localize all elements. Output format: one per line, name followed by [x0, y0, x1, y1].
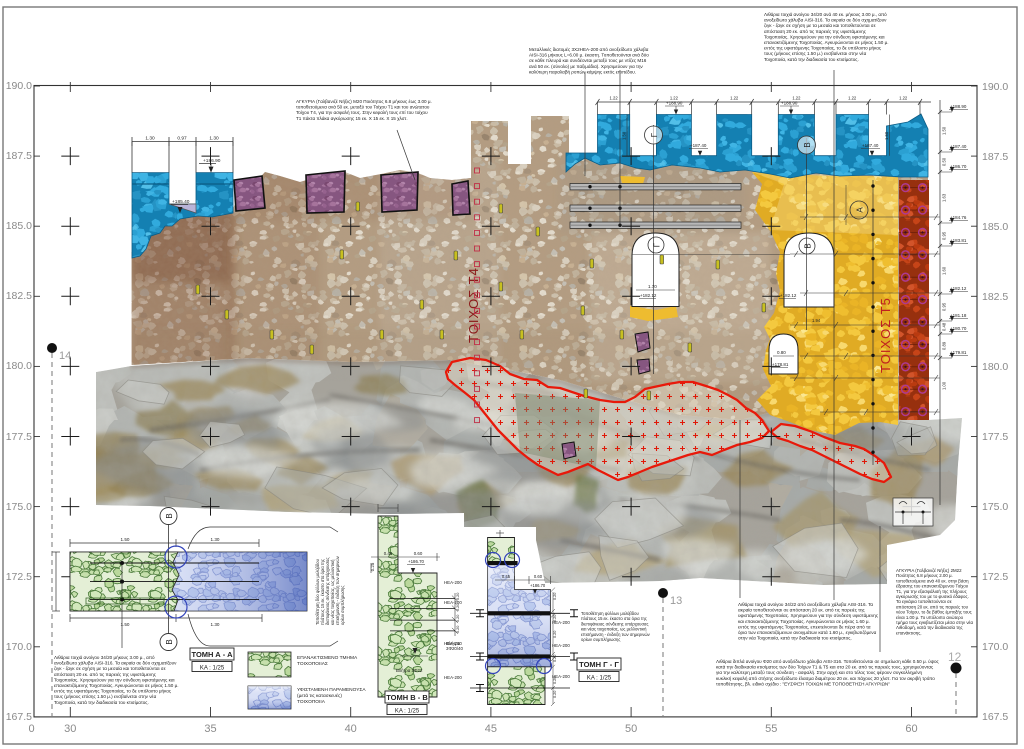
- svg-text:30: 30: [64, 723, 76, 735]
- svg-text:ΤΟΙΧΟΣ Τ4: ΤΟΙΧΟΣ Τ4: [466, 267, 481, 343]
- svg-text:(μετά τις κατασκευές): (μετά τις κατασκευές): [297, 692, 342, 699]
- svg-text:1.63: 1.63: [942, 193, 947, 202]
- svg-text:0.48: 0.48: [942, 322, 947, 331]
- svg-text:167.5: 167.5: [6, 711, 32, 723]
- svg-text:0.89: 0.89: [942, 341, 947, 350]
- svg-text:ΗΕΑ-200: ΗΕΑ-200: [444, 675, 462, 680]
- svg-text:Β: Β: [804, 243, 813, 248]
- svg-text:+187.40: +187.40: [690, 143, 707, 148]
- svg-text:170.0: 170.0: [982, 641, 1008, 653]
- svg-text:Β: Β: [165, 639, 174, 644]
- svg-text:172.5: 172.5: [982, 571, 1008, 583]
- svg-text:3Φ20/40: 3Φ20/40: [446, 646, 463, 651]
- svg-text:Τ1 πάκτα πλάκα αγκύρωσης 15 ε: Τ1 πάκτα πλάκα αγκύρωσης 15 εκ. Χ 15 εκ.…: [296, 115, 408, 121]
- svg-text:Τοιχοποιίας. Χρησιμεύουν για τ: Τοιχοποιίας. Χρησιμεύουν για την σύνδεση…: [54, 676, 175, 682]
- svg-text:1.50: 1.50: [942, 126, 947, 135]
- svg-text:εντός της υφιστάμενης Τοιχοποι: εντός της υφιστάμενης Τοιχοποιίας, το δε…: [764, 45, 882, 51]
- svg-text:Γ: Γ: [653, 242, 662, 247]
- svg-text:180.0: 180.0: [6, 360, 32, 372]
- svg-text:0.45: 0.45: [502, 574, 511, 579]
- svg-text:60: 60: [905, 723, 917, 735]
- svg-text:Β: Β: [165, 513, 174, 518]
- svg-text:175.0: 175.0: [6, 501, 32, 513]
- svg-text:+185.40: +185.40: [172, 199, 190, 205]
- svg-text:ΤΟΜΗ Γ - Γ: ΤΟΜΗ Γ - Γ: [579, 660, 619, 669]
- svg-text:1.94: 1.94: [812, 318, 821, 323]
- svg-text:0.45: 0.45: [384, 551, 393, 556]
- svg-text:+186.70: +186.70: [408, 559, 425, 564]
- svg-text:+187.40: +187.40: [862, 143, 879, 148]
- svg-text:ΥΦΙΣΤΑΜΕΝΗ ΠΑΡΑΜΕΝΟΥΣΑ: ΥΦΙΣΤΑΜΕΝΗ ΠΑΡΑΜΕΝΟΥΣΑ: [297, 687, 366, 693]
- svg-text:Τοίχου Τ4, για την ασφαλή τους: Τοίχου Τ4, για την ασφαλή τους. Στην κεφ…: [296, 109, 428, 115]
- svg-text:ορίων συμπλήρωσης: ορίων συμπλήρωσης: [581, 637, 620, 642]
- svg-text:1.22: 1.22: [610, 96, 619, 101]
- svg-text:182.5: 182.5: [982, 291, 1008, 303]
- svg-text:AISI-316 μήκους L=6.00 μ. έκασ: AISI-316 μήκους L=6.00 μ. έκαστη. Τοποθε…: [529, 52, 649, 58]
- svg-text:0: 0: [29, 723, 35, 735]
- svg-text:185.0: 185.0: [982, 221, 1008, 233]
- svg-text:0.60: 0.60: [414, 551, 423, 556]
- svg-text:0.20: 0.20: [553, 593, 557, 600]
- svg-text:167.5: 167.5: [982, 711, 1008, 723]
- svg-text:40: 40: [345, 723, 357, 735]
- svg-text:182.5: 182.5: [6, 290, 32, 302]
- svg-text:1.30: 1.30: [211, 537, 220, 542]
- svg-text:ΕΠΑΝΑΚΤΙΣΜΕΝΟ ΤΜΗΜΑ: ΕΠΑΝΑΚΤΙΣΜΕΝΟ ΤΜΗΜΑ: [297, 655, 358, 661]
- svg-text:187.5: 187.5: [982, 151, 1008, 163]
- svg-text:0.20: 0.20: [553, 631, 557, 638]
- svg-text:ακραία τοποθετούνται σε απόστα: ακραία τοποθετούνται σε απόσταση 20 εκ. …: [738, 607, 866, 613]
- svg-text:ΤΟΙΧΟΠΟΙΙΑΣ: ΤΟΙΧΟΠΟΙΙΑΣ: [297, 661, 328, 667]
- svg-text:στην νέα Τοιχοποιία, κατά την: στην νέα Τοιχοποιία, κατά την διαδικασία…: [738, 635, 852, 641]
- svg-text:Λιθάρια τοιχιά ανοίγου 34/20 μ: Λιθάρια τοιχιά ανοίγου 34/20 μήκους 3.00…: [54, 654, 155, 660]
- svg-text:1.70: 1.70: [648, 284, 657, 289]
- svg-text:1.30: 1.30: [145, 136, 155, 142]
- svg-text:+182.12: +182.12: [780, 293, 797, 298]
- svg-text:185.0: 185.0: [6, 220, 32, 232]
- svg-text:187.5: 187.5: [6, 150, 32, 162]
- svg-text:1.30: 1.30: [209, 136, 219, 142]
- svg-text:ΤΟΜΗ Α - Α: ΤΟΜΗ Α - Α: [192, 650, 234, 659]
- svg-text:Α: Α: [856, 207, 865, 213]
- svg-text:τους (μήκους επίσης 1.50 μ.) ε: τους (μήκους επίσης 1.50 μ.) ενσβαίνεται…: [54, 693, 157, 699]
- svg-text:177.5: 177.5: [6, 431, 32, 443]
- svg-text:+188.90: +188.90: [666, 101, 683, 106]
- svg-text:ΚΑ : 1/25: ΚΑ : 1/25: [395, 709, 420, 715]
- svg-text:ΤΟΙΧΟΠΟΙΙΑ: ΤΟΙΧΟΠΟΙΙΑ: [297, 699, 326, 705]
- svg-text:1.22: 1.22: [730, 96, 739, 101]
- svg-text:καλύτερη παραλαβή ροπών κάμψης: καλύτερη παραλαβή ροπών κάμψης εκτός επι…: [529, 68, 636, 74]
- svg-text:ορίων συμπλήρωσης: ορίων συμπλήρωσης: [340, 586, 345, 625]
- svg-text:12: 12: [948, 650, 962, 664]
- svg-text:35: 35: [204, 723, 216, 735]
- svg-text:Γ: Γ: [650, 132, 659, 137]
- svg-text:απόσταση 20 εκ. από τις παρειέ: απόσταση 20 εκ. από τις παρειές της υφισ…: [764, 28, 867, 34]
- svg-text:1.50: 1.50: [622, 131, 627, 140]
- svg-text:190.0: 190.0: [982, 81, 1008, 93]
- svg-text:ΗΕΑ-200: ΗΕΑ-200: [444, 580, 462, 585]
- svg-text:180.0: 180.0: [982, 361, 1008, 373]
- svg-text:Τοιχοποιίας. Χρησιμεύουν για τ: Τοιχοποιίας. Χρησιμεύουν για την σύνδεση…: [764, 33, 885, 39]
- svg-text:1.50: 1.50: [121, 537, 130, 542]
- svg-text:0.97: 0.97: [177, 136, 187, 142]
- svg-text:τοποθέτησης, βλ. ειδικό σχέδιο: τοποθέτησης, βλ. ειδικό σχέδιο : "ΕΥΣΦΙΞ…: [716, 680, 890, 686]
- svg-text:+186.70: +186.70: [530, 583, 546, 588]
- svg-text:170.0: 170.0: [6, 641, 32, 653]
- svg-text:0.20: 0.20: [456, 615, 460, 622]
- svg-text:14: 14: [59, 350, 71, 362]
- svg-text:Βλήτρα 3Φ22: Βλήτρα 3Φ22: [396, 668, 423, 673]
- svg-text:ΚΑ : 1/25: ΚΑ : 1/25: [587, 676, 612, 682]
- svg-text:0.20: 0.20: [553, 691, 557, 698]
- svg-text:1.22: 1.22: [848, 96, 857, 101]
- svg-text:0.95: 0.95: [942, 231, 947, 240]
- svg-text:επανάκτισης.: επανάκτισης.: [896, 630, 922, 635]
- svg-text:1.50: 1.50: [121, 622, 130, 627]
- svg-text:+188.90: +188.90: [781, 101, 798, 106]
- svg-text:177.5: 177.5: [982, 431, 1008, 443]
- svg-text:+186.90: +186.90: [203, 158, 221, 164]
- svg-text:0.25: 0.25: [370, 562, 375, 571]
- svg-text:+182.12: +182.12: [640, 293, 657, 298]
- svg-text:0.60: 0.60: [534, 574, 543, 579]
- svg-text:0.95: 0.95: [942, 302, 947, 311]
- svg-text:ΗΕΑ-200: ΗΕΑ-200: [552, 643, 570, 648]
- svg-text:1.60: 1.60: [942, 266, 947, 275]
- svg-text:190.0: 190.0: [6, 80, 32, 92]
- svg-text:Β: Β: [803, 142, 812, 147]
- svg-text:ΤΟΜΗ Β - Β: ΤΟΜΗ Β - Β: [386, 693, 428, 702]
- svg-text:0.20: 0.20: [456, 626, 460, 633]
- svg-text:ΗΕΑ-200: ΗΕΑ-200: [444, 641, 462, 646]
- svg-text:0.20: 0.20: [553, 615, 557, 622]
- svg-text:1.30: 1.30: [211, 622, 220, 627]
- svg-text:175.0: 175.0: [982, 501, 1008, 513]
- svg-text:0.20: 0.20: [456, 593, 460, 600]
- svg-text:απόσταση 20 εκ. από τις παρειέ: απόσταση 20 εκ. από τις παρειές της υφισ…: [54, 671, 157, 677]
- svg-text:0.50: 0.50: [942, 157, 947, 166]
- svg-text:εντός της υφιστάμενης Τοιχοποι: εντός της υφιστάμενης Τοιχοποιίας, επεκτ…: [738, 623, 871, 629]
- svg-text:ΤΟΙΧΟΣ Τ5: ΤΟΙΧΟΣ Τ5: [878, 297, 893, 373]
- svg-text:0.20: 0.20: [553, 677, 557, 684]
- svg-text:υφιστάμενης Τοιχοποιίας. Χρησι: υφιστάμενης Τοιχοποιίας. Χρησιμεύουν για…: [738, 612, 879, 618]
- svg-text:55: 55: [765, 723, 777, 735]
- svg-text:ΗΕΑ-200: ΗΕΑ-200: [444, 600, 462, 605]
- svg-text:50: 50: [625, 723, 637, 735]
- svg-text:1.00: 1.00: [942, 381, 947, 390]
- svg-text:45: 45: [485, 723, 497, 735]
- svg-text:τους (μήκους επίσης 1.50 μ.) ε: τους (μήκους επίσης 1.50 μ.) ενσβαίνεται…: [764, 50, 867, 56]
- svg-text:1.50: 1.50: [884, 131, 889, 140]
- svg-text:172.5: 172.5: [6, 571, 32, 583]
- svg-text:0.80: 0.80: [777, 350, 786, 355]
- svg-text:1.22: 1.22: [899, 96, 908, 101]
- svg-text:13: 13: [670, 595, 682, 607]
- svg-text:Τοιχοποιία, κατά την διαδικασί: Τοιχοποιία, κατά την διαδικασία του κτισ…: [54, 699, 149, 705]
- svg-text:κατά την διαδικασία κτισίματος: κατά την διαδικασία κτισίματος των δύο Τ…: [716, 664, 934, 670]
- svg-text:ΚΑ : 1/25: ΚΑ : 1/25: [200, 666, 225, 672]
- svg-text:εντός της υφιστάμενης Τοιχοποι: εντός της υφιστάμενης Τοιχοποιίας, το δε…: [54, 688, 172, 694]
- svg-text:Τοιχοποιία, κατά την διαδικασί: Τοιχοποιία, κατά την διαδικασία του κτισ…: [764, 56, 859, 62]
- svg-text:Λιθάρια τοιχιά ανοίγου 34/20 α: Λιθάρια τοιχιά ανοίγου 34/20 ανά 40 εκ. …: [764, 11, 887, 17]
